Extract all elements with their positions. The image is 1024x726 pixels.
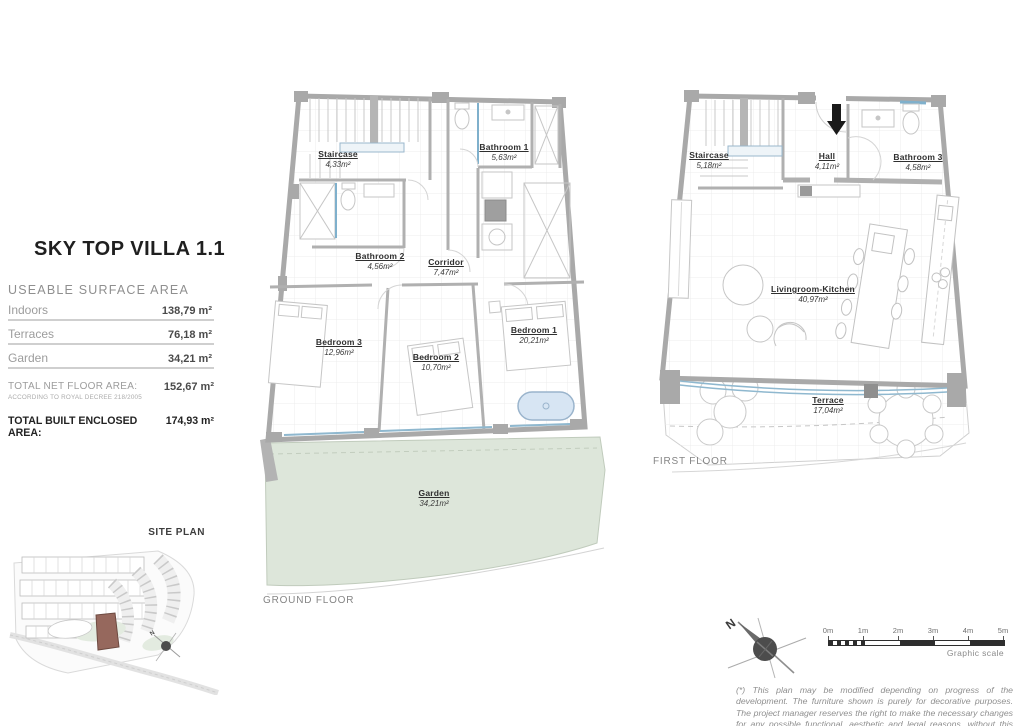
room-label-terrace: Terrace 17,04m²: [812, 396, 844, 415]
room-label-livingroom-kitchen: Livingroom-Kitchen 40,97m²: [771, 285, 855, 304]
room-label-bedroom2: Bedroom 2 10,70m²: [413, 353, 459, 372]
scale-tick: 4m: [963, 626, 973, 635]
row-value: 76,18 m²: [168, 329, 212, 341]
total-net-value: 152,67 m²: [164, 381, 214, 401]
room-label-bedroom1: Bedroom 1 20,21m²: [511, 326, 557, 345]
page-title: SKY TOP VILLA 1.1: [34, 238, 214, 261]
bathtub: [518, 392, 574, 420]
site-plan-title: SITE PLAN: [100, 527, 205, 538]
scale-tick: 3m: [928, 626, 938, 635]
room-label-bathroom2: Bathroom 2 4,56m²: [355, 252, 404, 271]
room-label-staircase-ff: Staircase 5,18m²: [689, 151, 729, 170]
scale-bar-segments: [828, 640, 1005, 646]
compass-icon: N: [718, 610, 818, 695]
first-floor-caption: FIRST FLOOR: [653, 456, 728, 467]
surface-row-indoors: Indoors 138,79 m²: [8, 297, 214, 321]
info-panel: SKY TOP VILLA 1.1 USEABLE SURFACE AREA I…: [8, 238, 214, 439]
scale-tick: 0m: [823, 626, 833, 635]
total-built-value: 174,93 m²: [166, 415, 214, 439]
room-label-garden: Garden 34,21m²: [419, 489, 450, 508]
room-label-bathroom3: Bathroom 3 4,58m²: [893, 153, 942, 172]
total-net-label: TOTAL NET FLOOR AREA:: [8, 381, 142, 392]
disclaimer-text: (*) This plan may be modified depending …: [736, 685, 1013, 726]
total-built-label: TOTAL BUILT ENCLOSED AREA:: [8, 415, 166, 439]
total-built-row: TOTAL BUILT ENCLOSED AREA: 174,93 m²: [8, 415, 214, 439]
compass-north-label: N: [723, 616, 738, 632]
hall-cabinet: [798, 185, 860, 197]
bedroom2-bed: [408, 338, 473, 415]
row-value: 34,21 m²: [168, 353, 212, 365]
scale-tick: 1m: [858, 626, 868, 635]
total-net-row: TOTAL NET FLOOR AREA: ACCORDING TO ROYAL…: [8, 381, 214, 401]
room-label-bedroom3: Bedroom 3 12,96m²: [316, 338, 362, 357]
site-plan-estate: N: [10, 551, 218, 693]
room-label-bathroom1: Bathroom 1 5,63m²: [479, 143, 528, 162]
highlighted-plot: [96, 613, 119, 650]
site-plan-map: N: [8, 543, 220, 695]
total-net-note: ACCORDING TO ROYAL DECREE 218/2005: [8, 394, 142, 401]
surface-row-terraces: Terraces 76,18 m²: [8, 321, 214, 345]
ground-floor-caption: GROUND FLOOR: [263, 595, 354, 606]
graphic-scale-caption: Graphic scale: [828, 648, 1004, 658]
surface-row-garden: Garden 34,21 m²: [8, 345, 214, 369]
row-value: 138,79 m²: [162, 305, 212, 317]
room-label-staircase-gf: Staircase 4,33m²: [318, 150, 358, 169]
scale-tick: 5m: [998, 626, 1008, 635]
row-label: Garden: [8, 351, 48, 365]
room-label-hall: Hall 4,11m²: [815, 152, 839, 171]
room-label-corridor: Corridor 7,47m²: [428, 258, 464, 277]
row-label: Terraces: [8, 327, 54, 341]
garden-area: [260, 437, 605, 594]
scale-tick: 2m: [893, 626, 903, 635]
brochure-page: SKY TOP VILLA 1.1 USEABLE SURFACE AREA I…: [0, 0, 1024, 726]
row-label: Indoors: [8, 303, 48, 317]
surface-area-heading: USEABLE SURFACE AREA: [8, 283, 214, 297]
